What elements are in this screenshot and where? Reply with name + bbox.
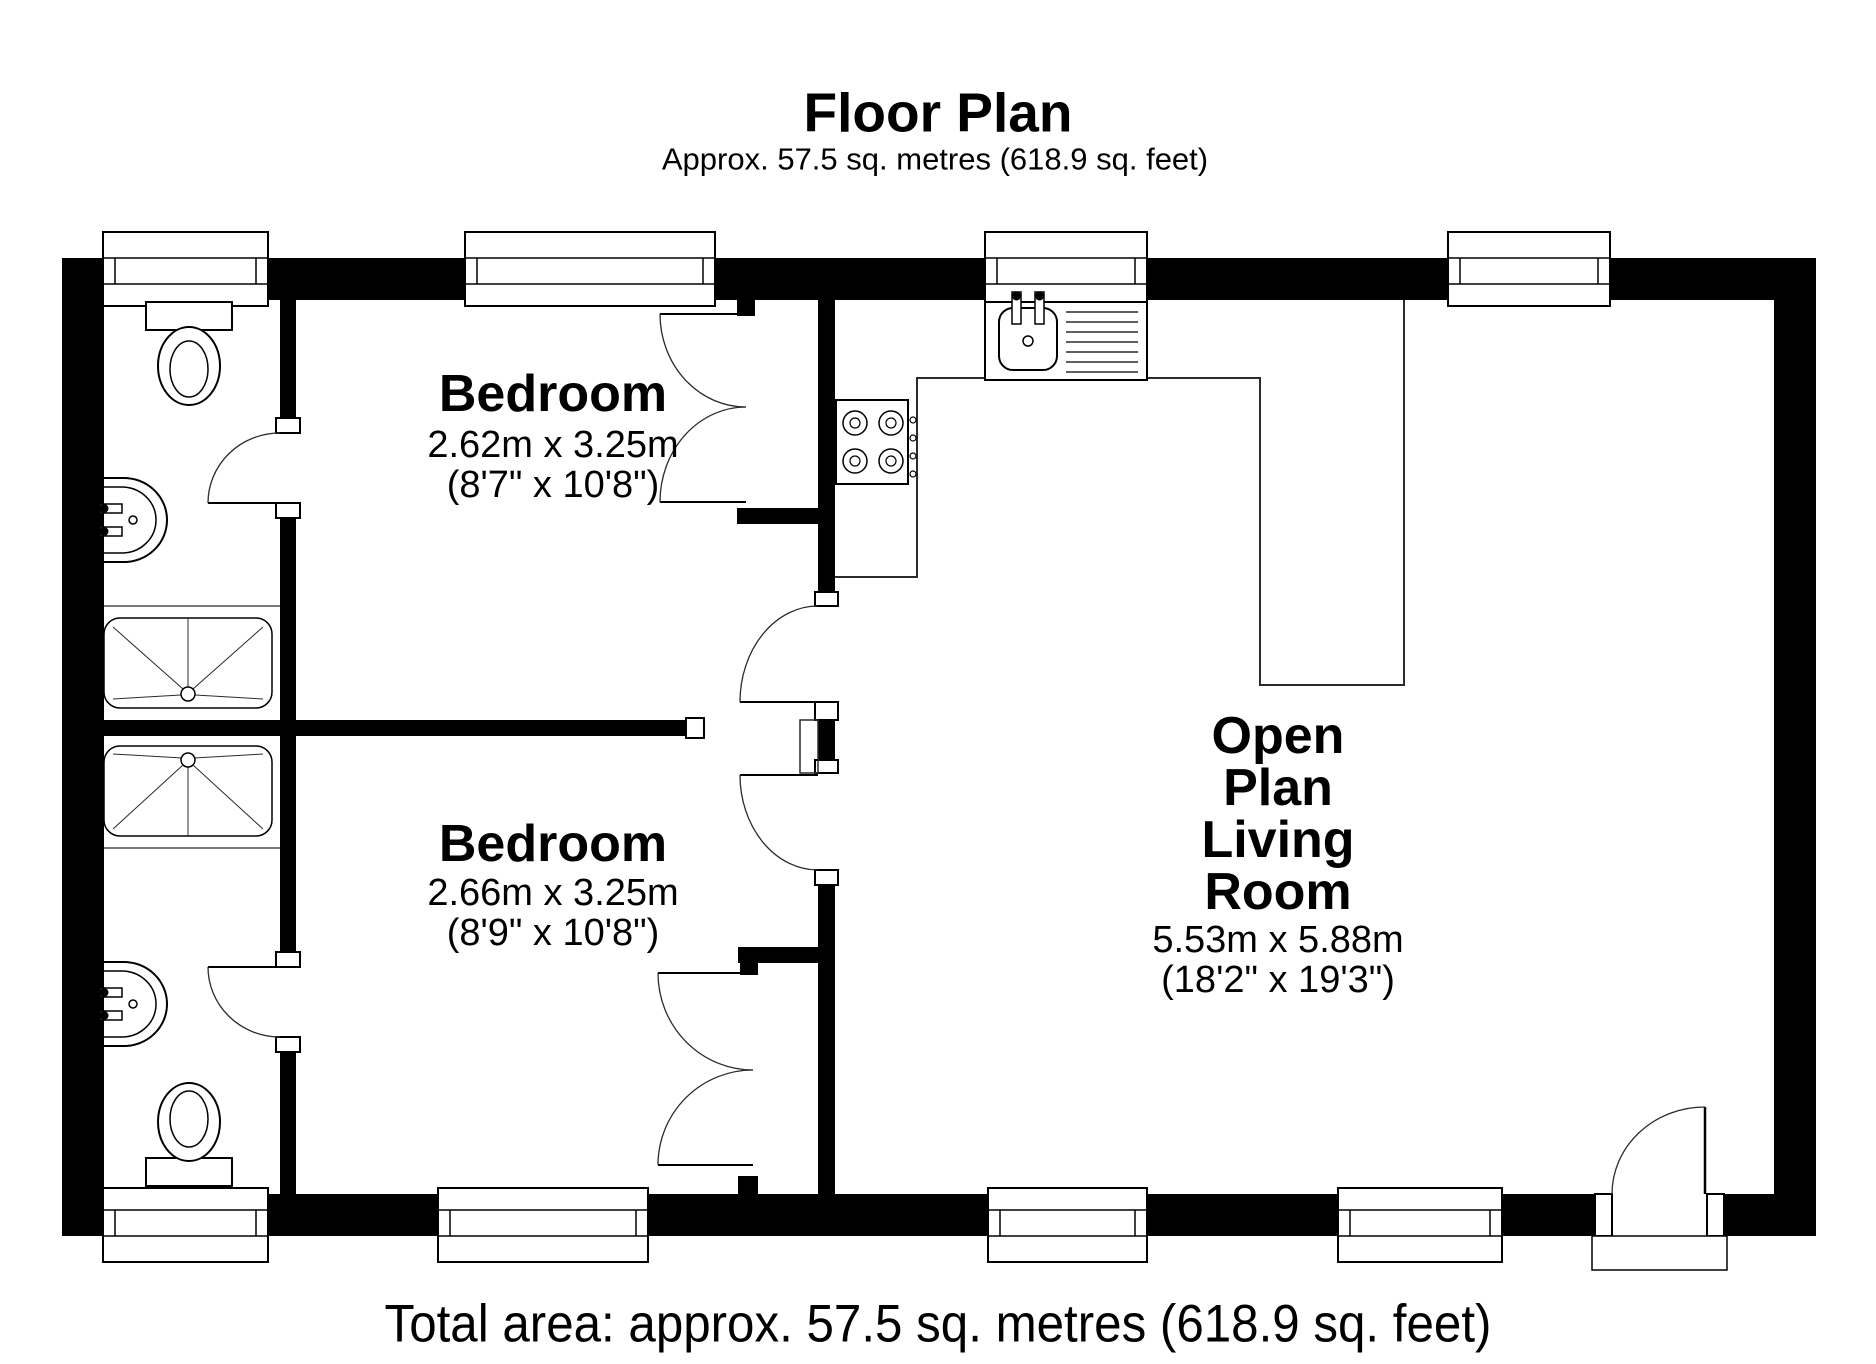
bedroom-door-top <box>740 606 818 702</box>
bedroom-top-label: Bedroom <box>439 368 667 420</box>
bedroom-bottom-size-metric: 2.66m x 3.25m <box>427 874 678 912</box>
bathroom-door-top <box>208 433 280 503</box>
living-room-size-imperial: (18'2" x 19'3") <box>1161 961 1395 999</box>
floor-plan-page: Floor Plan Approx. 57.5 sq. metres (618.… <box>0 0 1876 1364</box>
toilet-icon <box>146 1083 232 1186</box>
window-icon <box>1448 232 1610 306</box>
bedroom-top-size-imperial: (8'7" x 10'8") <box>447 466 660 504</box>
total-area-text: Total area: approx. 57.5 sq. metres (618… <box>385 1298 1492 1351</box>
shower-tray-icon <box>104 746 280 848</box>
living-room-label-line2: Plan <box>1223 762 1333 814</box>
hob-icon <box>836 400 916 484</box>
door-threshold <box>1592 1236 1727 1270</box>
toilet-icon <box>146 302 232 405</box>
bedroom-top-size-metric: 2.62m x 3.25m <box>427 426 678 464</box>
window-icon <box>465 232 715 306</box>
window-icon <box>103 1188 268 1262</box>
bedroom-door-bottom <box>740 775 818 870</box>
kitchen-sink-icon <box>985 292 1147 381</box>
exterior-walls <box>62 258 1816 1236</box>
bedroom-bottom-label: Bedroom <box>439 818 667 870</box>
bathroom-door-bottom <box>208 967 280 1037</box>
living-room-label-line4: Room <box>1204 866 1351 918</box>
shower-tray-icon <box>104 606 280 708</box>
basin-icon <box>100 962 168 1046</box>
floor-plan-drawing <box>0 0 1876 1364</box>
window-icon <box>103 232 268 306</box>
entrance-door <box>1592 1107 1727 1270</box>
bedroom-bottom-size-imperial: (8'9" x 10'8") <box>447 914 660 952</box>
basin-icon <box>100 478 168 562</box>
closet-double-doors-top <box>660 314 746 502</box>
window-icon <box>988 1188 1147 1262</box>
living-room-label-line3: Living <box>1201 814 1354 866</box>
closet-double-doors-bottom <box>658 973 753 1165</box>
living-room-size-metric: 5.53m x 5.88m <box>1152 921 1403 959</box>
window-icon <box>1338 1188 1502 1262</box>
window-icon <box>438 1188 648 1262</box>
living-room-label-line1: Open <box>1212 710 1345 762</box>
window-icon <box>985 232 1147 306</box>
